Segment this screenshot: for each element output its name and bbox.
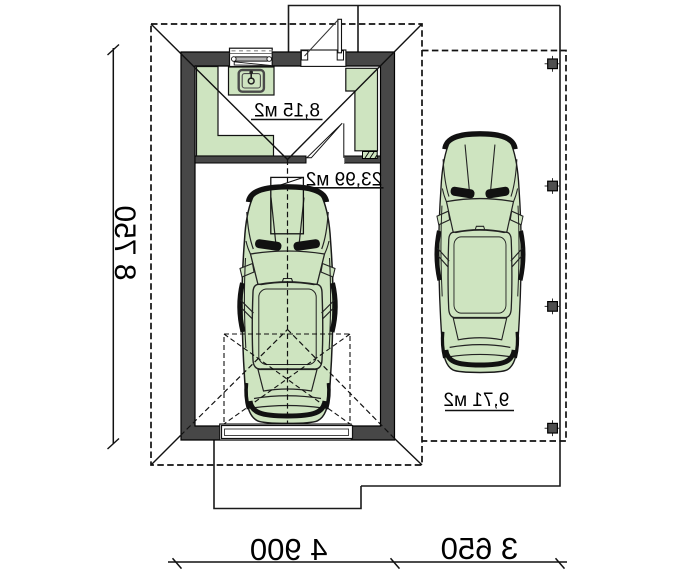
- svg-text:9,71 м2: 9,71 м2: [443, 390, 509, 411]
- svg-text:4 900: 4 900: [250, 532, 328, 567]
- svg-text:8,15 м2: 8,15 м2: [254, 101, 320, 122]
- svg-text:3 650: 3 650: [441, 531, 519, 566]
- svg-text:8 750: 8 750: [108, 205, 141, 280]
